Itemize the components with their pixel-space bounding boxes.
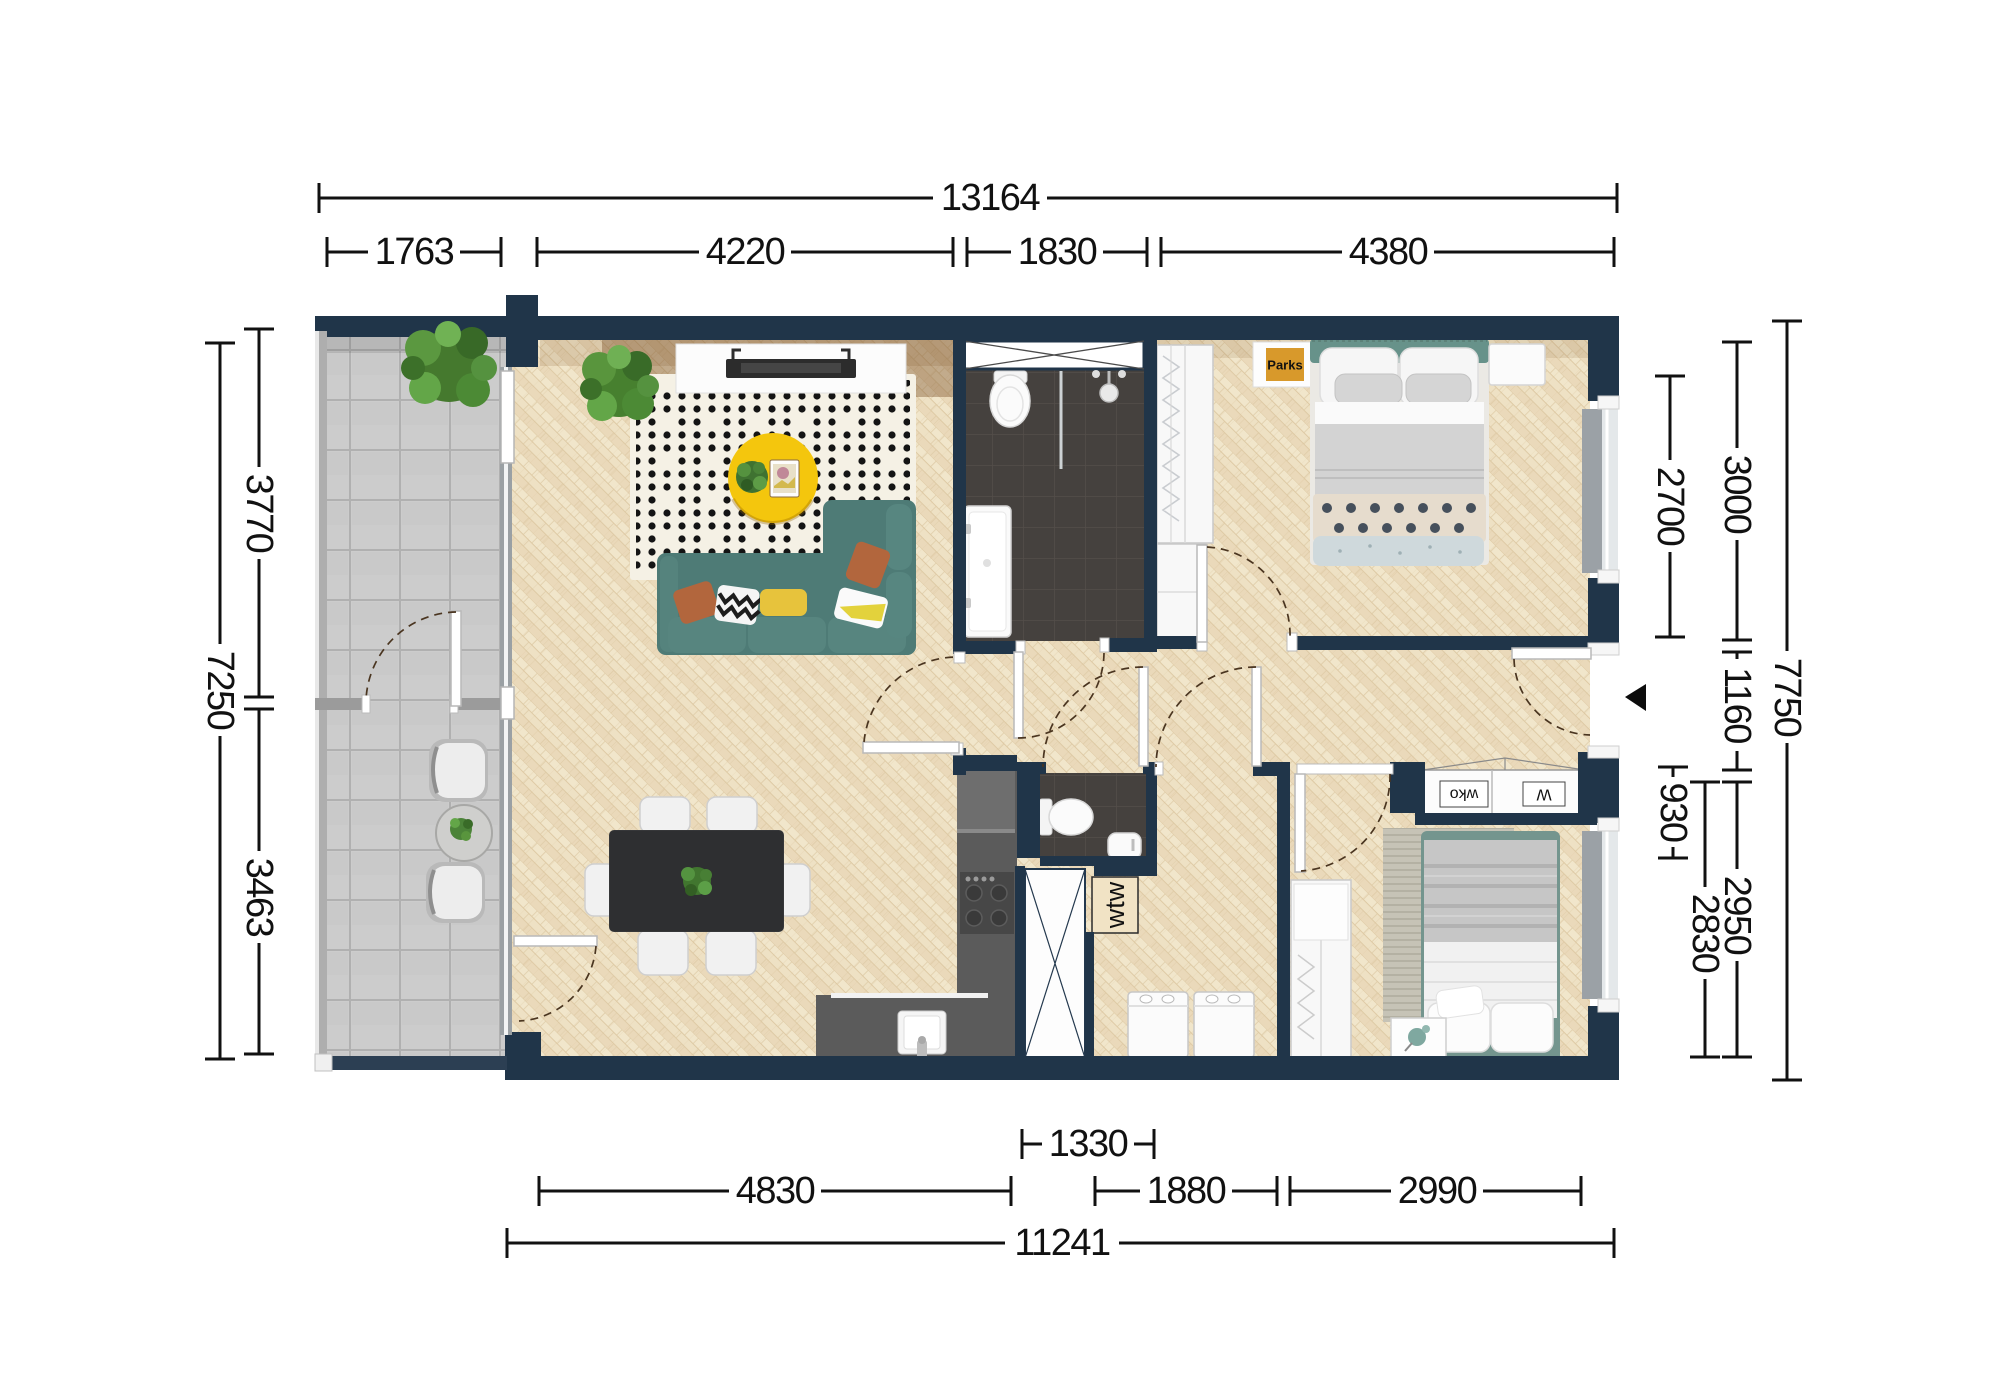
svg-text:13164: 13164: [941, 177, 1041, 219]
svg-text:4380: 4380: [1349, 231, 1428, 273]
svg-text:3000: 3000: [1716, 455, 1758, 534]
svg-text:2700: 2700: [1649, 467, 1691, 546]
svg-text:11241: 11241: [1014, 1222, 1110, 1264]
svg-text:1160: 1160: [1716, 667, 1758, 743]
svg-text:3463: 3463: [238, 858, 280, 937]
svg-text:Parks: Parks: [1267, 358, 1302, 373]
svg-text:1330: 1330: [1049, 1123, 1128, 1165]
svg-text:1830: 1830: [1018, 231, 1097, 273]
svg-text:1880: 1880: [1147, 1170, 1226, 1212]
svg-text:W: W: [1536, 786, 1552, 803]
svg-text:4220: 4220: [706, 231, 785, 273]
svg-text:wko: wko: [1450, 786, 1480, 803]
svg-text:2830: 2830: [1684, 894, 1726, 973]
svg-text:4830: 4830: [736, 1170, 815, 1212]
svg-text:wtw: wtw: [1100, 881, 1130, 929]
svg-text:7250: 7250: [199, 651, 241, 730]
svg-text:2990: 2990: [1398, 1170, 1477, 1212]
svg-text:7750: 7750: [1766, 658, 1808, 737]
svg-text:1763: 1763: [375, 231, 454, 273]
svg-text:930: 930: [1652, 783, 1694, 842]
svg-text:3770: 3770: [238, 474, 280, 553]
